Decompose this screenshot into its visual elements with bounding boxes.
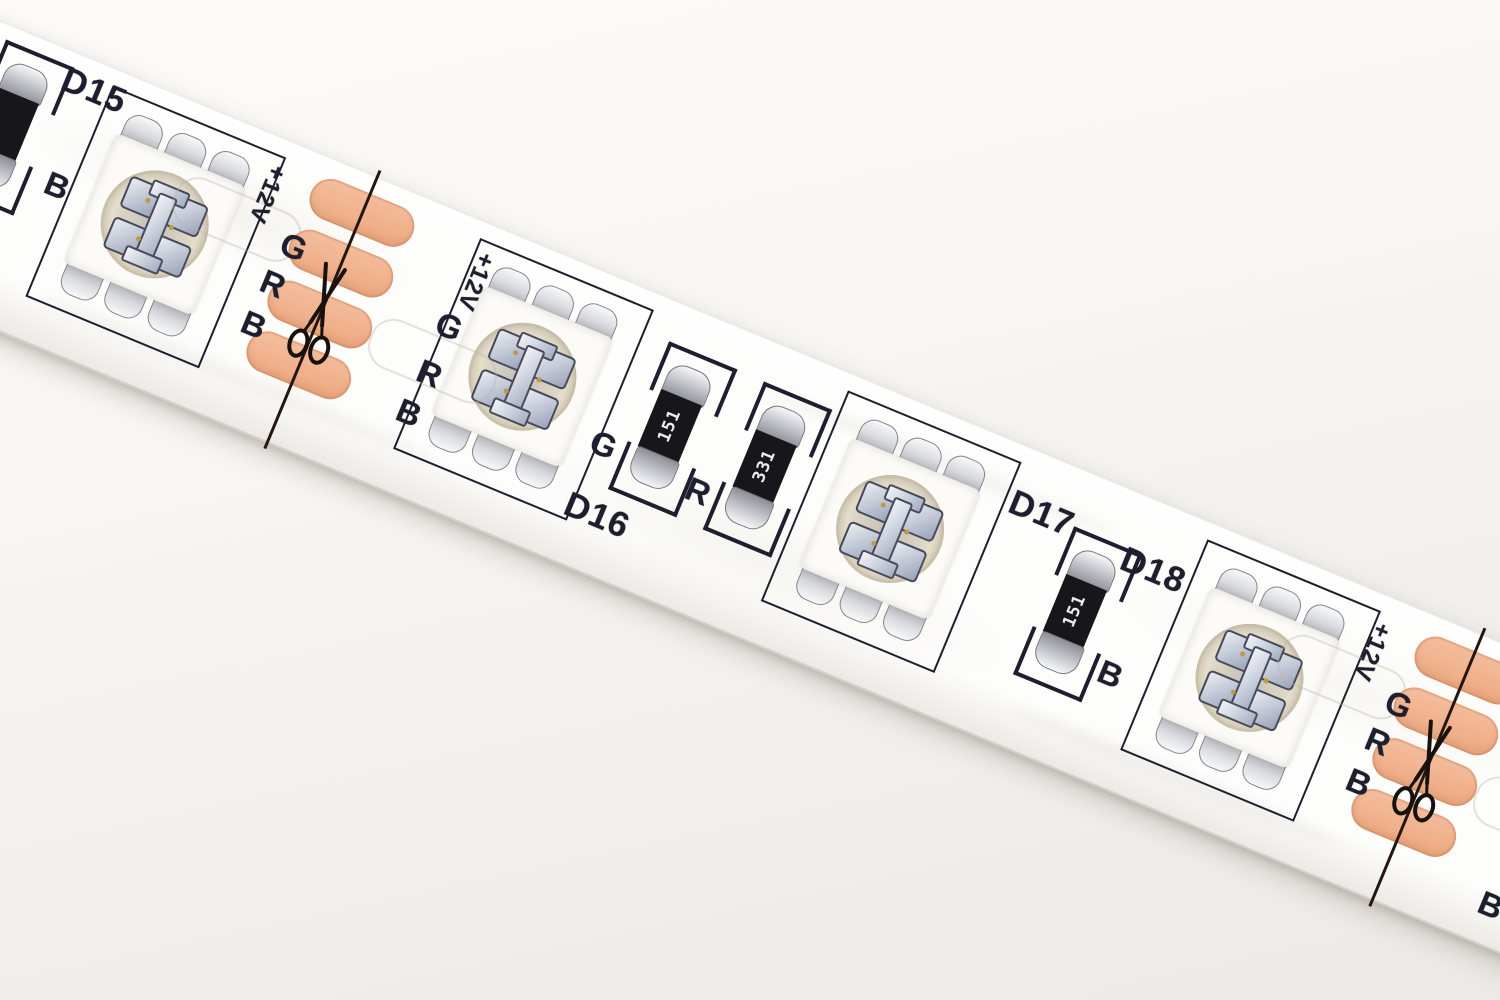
led-d18 bbox=[1207, 574, 1293, 781]
pin-label-blue: B bbox=[1472, 883, 1500, 927]
led-strip-pcb: B bbox=[0, 0, 1500, 974]
resistor-value: 331 bbox=[749, 447, 780, 486]
led-designator-label: D15 bbox=[55, 60, 132, 123]
bond-wire-dot bbox=[536, 377, 543, 384]
led-d17 bbox=[847, 426, 933, 633]
cut-point: +12V G R B +12V G R B bbox=[267, 178, 376, 441]
bond-wire-dot bbox=[1263, 678, 1270, 685]
cut-point: +12V G R B bbox=[1372, 635, 1481, 898]
photo-canvas: { "scene": { "subject": "Close-up photog… bbox=[0, 0, 1500, 1000]
bond-wire-dot bbox=[903, 529, 910, 536]
resistor-value: 151 bbox=[1059, 592, 1090, 631]
resistor-value: 151 bbox=[654, 406, 685, 445]
bond-wire-dot bbox=[168, 224, 175, 231]
led-designator-label: D17 bbox=[1003, 482, 1080, 545]
